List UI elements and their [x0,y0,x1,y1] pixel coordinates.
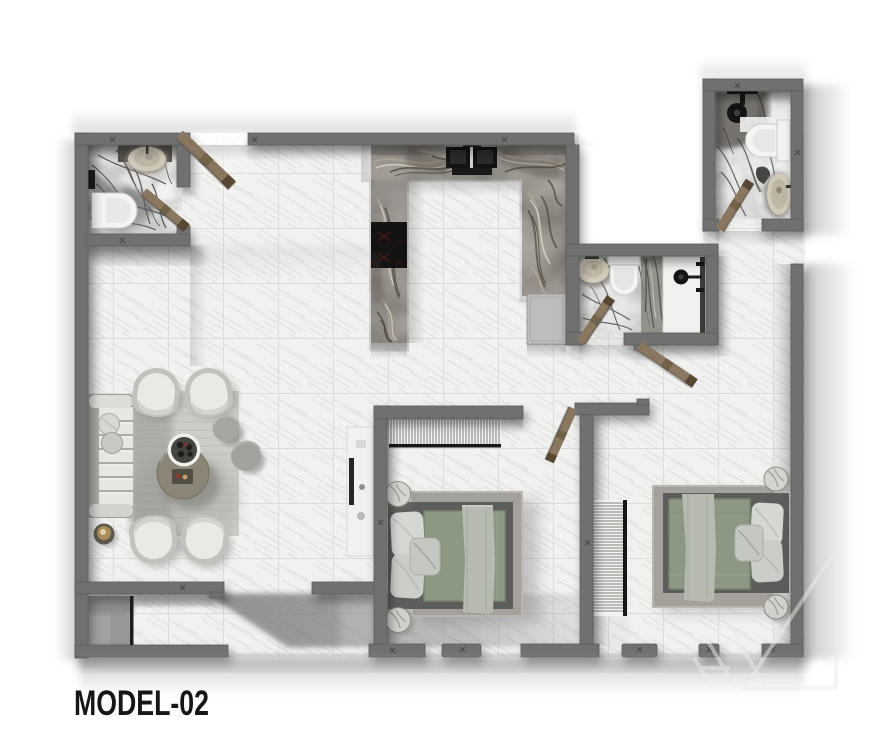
svg-text:MODEL-02: MODEL-02 [74,683,209,723]
